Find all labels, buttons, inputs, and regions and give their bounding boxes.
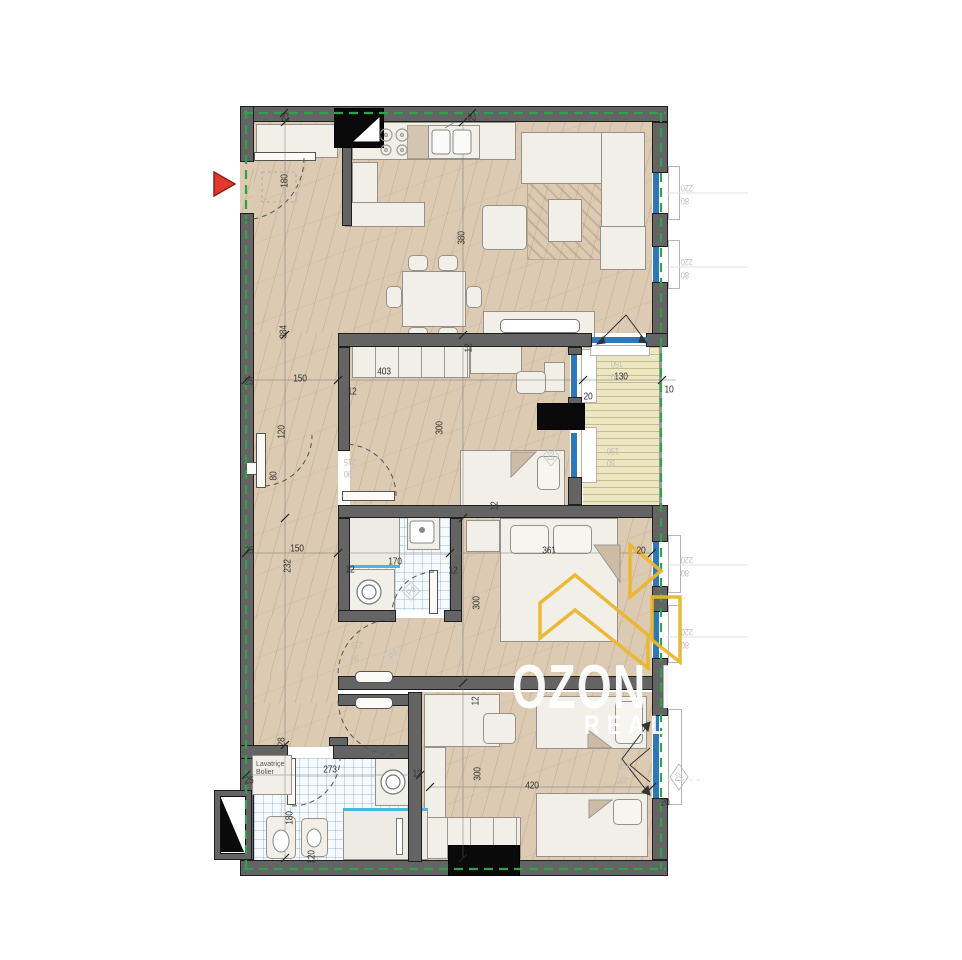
wall-bedroom1-balcony-a <box>568 347 582 355</box>
window-tag: 220 <box>681 627 693 637</box>
entrance-marker-arrow <box>214 172 235 196</box>
balcony-window-sill <box>581 349 597 403</box>
wall-left-upper <box>240 106 254 162</box>
utility-box-label: Lavatriçe Bolier <box>256 761 284 777</box>
floor-plan: Lavatriçe Bolier <box>0 0 962 960</box>
wall-balcony-corner <box>646 333 668 347</box>
shower-edge-bathroom-1 <box>345 565 400 568</box>
sofa-chaise <box>600 226 646 270</box>
pillow-bedroom-2 <box>510 525 549 554</box>
toilet <box>266 816 296 859</box>
washing-machine-bathroom-2 <box>375 757 410 806</box>
wall-bedroom1-balcony-c <box>568 477 582 505</box>
wall-right-pier <box>652 798 668 860</box>
wall-top <box>240 106 668 122</box>
window-tag: 80 <box>681 640 689 650</box>
wall-bathroom2-notch <box>329 737 348 746</box>
window-bedroom1-balcony-1 <box>571 355 577 397</box>
balcony-door-sill <box>590 345 650 356</box>
dimension-label: 10 <box>665 385 674 396</box>
shaft-top <box>334 108 384 148</box>
watermark-subtitle: REAL ESTATE <box>584 710 810 741</box>
shaft-bottom <box>448 845 520 876</box>
wall-bathroom1-right <box>450 518 462 622</box>
wall-bathroom1-bottom-b <box>444 610 462 622</box>
dining-chair <box>466 286 482 308</box>
kitchen-worktop-block <box>407 125 429 159</box>
utility-line-1: Lavatriçe <box>256 761 284 768</box>
door-leaf-bathroom-1 <box>429 570 438 614</box>
balcony-door <box>592 337 648 343</box>
window-tag: 220 <box>681 555 693 565</box>
window-sill <box>668 166 680 220</box>
window-living-1 <box>653 173 659 213</box>
window-bedroom1-balcony-2 <box>571 433 577 477</box>
wall-bedroom1-left <box>338 347 350 451</box>
window-sill <box>668 240 680 289</box>
shaft-middle <box>537 403 585 430</box>
nightstand-bedroom-1 <box>544 362 565 392</box>
armchair <box>482 205 527 250</box>
floor-entrance-gap <box>240 160 254 213</box>
pillow-bedroom-2 <box>553 525 592 554</box>
door-leaf-bedroom-3 <box>355 697 393 709</box>
shower-tray-bathroom-1 <box>344 516 400 567</box>
window-tag: 220 <box>681 183 693 193</box>
window-sill <box>668 535 681 593</box>
bidet-sink <box>301 818 328 857</box>
window-tag: 80 <box>681 270 689 280</box>
fridge <box>352 162 378 204</box>
pillow-bedroom-1 <box>537 456 560 490</box>
washing-machine-bathroom-1 <box>344 569 395 616</box>
shaft-exterior-inner <box>220 796 246 854</box>
floor-corridor-nook <box>254 618 462 676</box>
wall-right-pier <box>652 505 668 542</box>
wall-bathroom1-bottom-a <box>338 610 396 622</box>
wall-right-pier <box>652 282 668 334</box>
wall-right-pier <box>652 213 668 247</box>
shower-glass-panel <box>396 818 403 855</box>
tv-screen <box>500 319 580 333</box>
wall-bedroom1-bottom <box>338 505 668 518</box>
washbasin-bathroom-1 <box>407 516 440 550</box>
door-leaf-bedroom-1 <box>342 491 395 501</box>
wall-right-pier <box>652 586 668 612</box>
nightstand-bedroom-2 <box>466 520 500 552</box>
kitchen-island <box>345 202 425 227</box>
kitchen-sink-unit <box>428 125 480 159</box>
window-tag: 80 <box>681 568 689 578</box>
door-handle-left-wall <box>246 462 257 475</box>
door-leaf-left-wall <box>256 433 266 488</box>
pillow-bed-b <box>613 799 642 825</box>
wardrobe-bedroom-1 <box>352 345 470 378</box>
dining-chair <box>386 286 402 308</box>
balcony-railing <box>659 347 662 505</box>
coffee-table <box>548 199 582 242</box>
door-leaf-bedroom-2 <box>355 671 393 683</box>
chair-bedroom-1 <box>516 371 546 394</box>
dining-chair <box>408 255 428 271</box>
window-bedroom2-1 <box>653 542 659 586</box>
dining-chair <box>438 255 458 271</box>
wall-living-bedroom1 <box>338 333 592 347</box>
window-living-2 <box>653 247 659 282</box>
window-tag: 80 <box>681 196 689 206</box>
dining-table <box>402 271 466 327</box>
wall-right-pier <box>652 122 668 173</box>
balcony-window-sill <box>581 427 597 483</box>
wall-bathroom1-left <box>338 518 350 622</box>
wall-bathroom2-bedroom3 <box>408 692 422 862</box>
entrance-door-leaf <box>254 152 316 161</box>
utility-line-2: Bolier <box>256 769 274 776</box>
window-tag: 220 <box>681 257 693 267</box>
